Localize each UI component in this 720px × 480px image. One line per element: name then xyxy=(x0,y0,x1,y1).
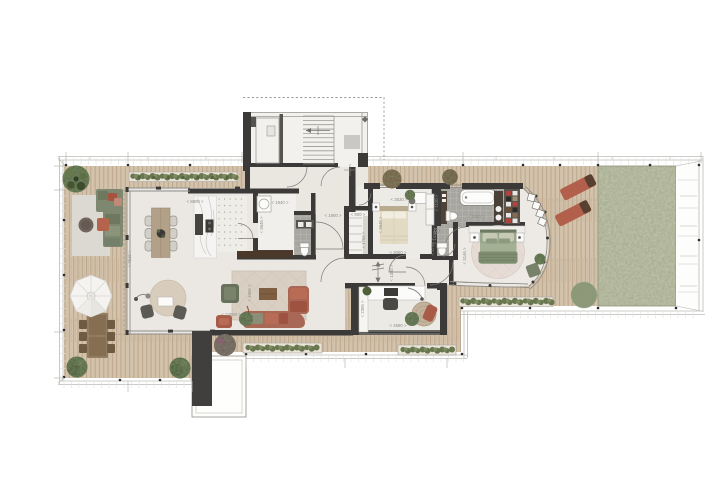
svg-text:< 4965 >: < 4965 > xyxy=(247,284,252,301)
svg-text:< 1380 >: < 1380 > xyxy=(389,264,394,281)
svg-text:< 1900 >: < 1900 > xyxy=(325,213,342,218)
svg-text:< 3645 >: < 3645 > xyxy=(259,216,264,233)
svg-text:< 3645 >: < 3645 > xyxy=(378,216,383,233)
svg-text:< 13050 >: < 13050 > xyxy=(221,312,241,317)
svg-text:< 3530 >: < 3530 > xyxy=(391,197,408,202)
svg-text:< 1940 >: < 1940 > xyxy=(272,200,289,205)
svg-text:< 900 >: < 900 > xyxy=(351,212,366,217)
svg-text:< 8800 >: < 8800 > xyxy=(187,199,204,204)
svg-text:< 2060 >: < 2060 > xyxy=(390,250,407,255)
svg-text:< 4590 >: < 4590 > xyxy=(390,323,407,328)
svg-text:< 1755 >: < 1755 > xyxy=(430,238,435,255)
svg-text:< 1755 >: < 1755 > xyxy=(361,231,366,248)
svg-text:< 3146 >: < 3146 > xyxy=(462,247,467,264)
svg-text:< 1120 >: < 1120 > xyxy=(434,194,439,211)
svg-text:< 7510 >: < 7510 > xyxy=(127,250,132,267)
svg-text:< 3080 >: < 3080 > xyxy=(468,214,485,219)
svg-text:< 2395 >: < 2395 > xyxy=(360,300,365,317)
